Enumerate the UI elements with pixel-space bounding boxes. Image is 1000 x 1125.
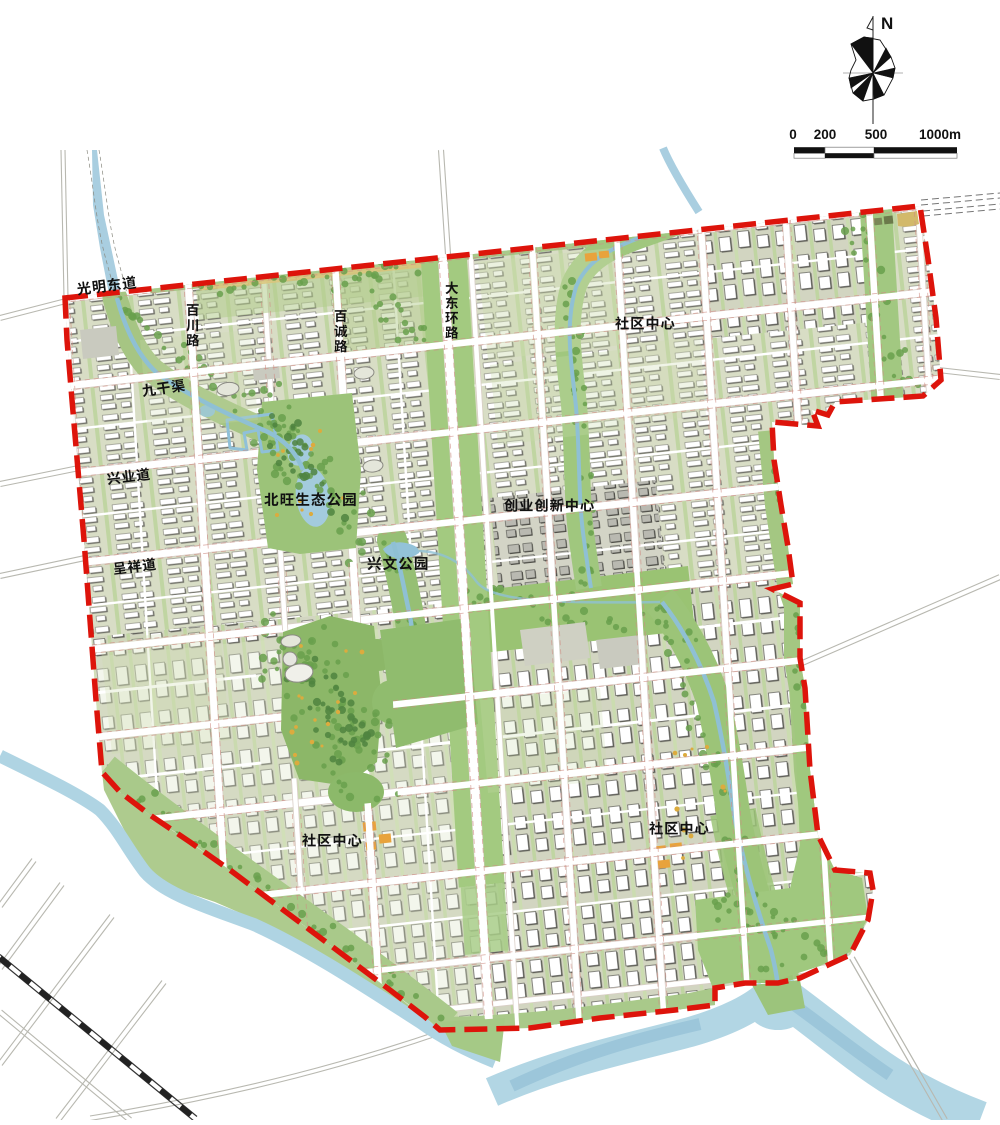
svg-text:0: 0	[789, 127, 797, 142]
svg-text:1000m: 1000m	[919, 127, 961, 142]
svg-text:N: N	[881, 14, 893, 33]
svg-text:200: 200	[814, 127, 837, 142]
svg-text:500: 500	[865, 127, 888, 142]
